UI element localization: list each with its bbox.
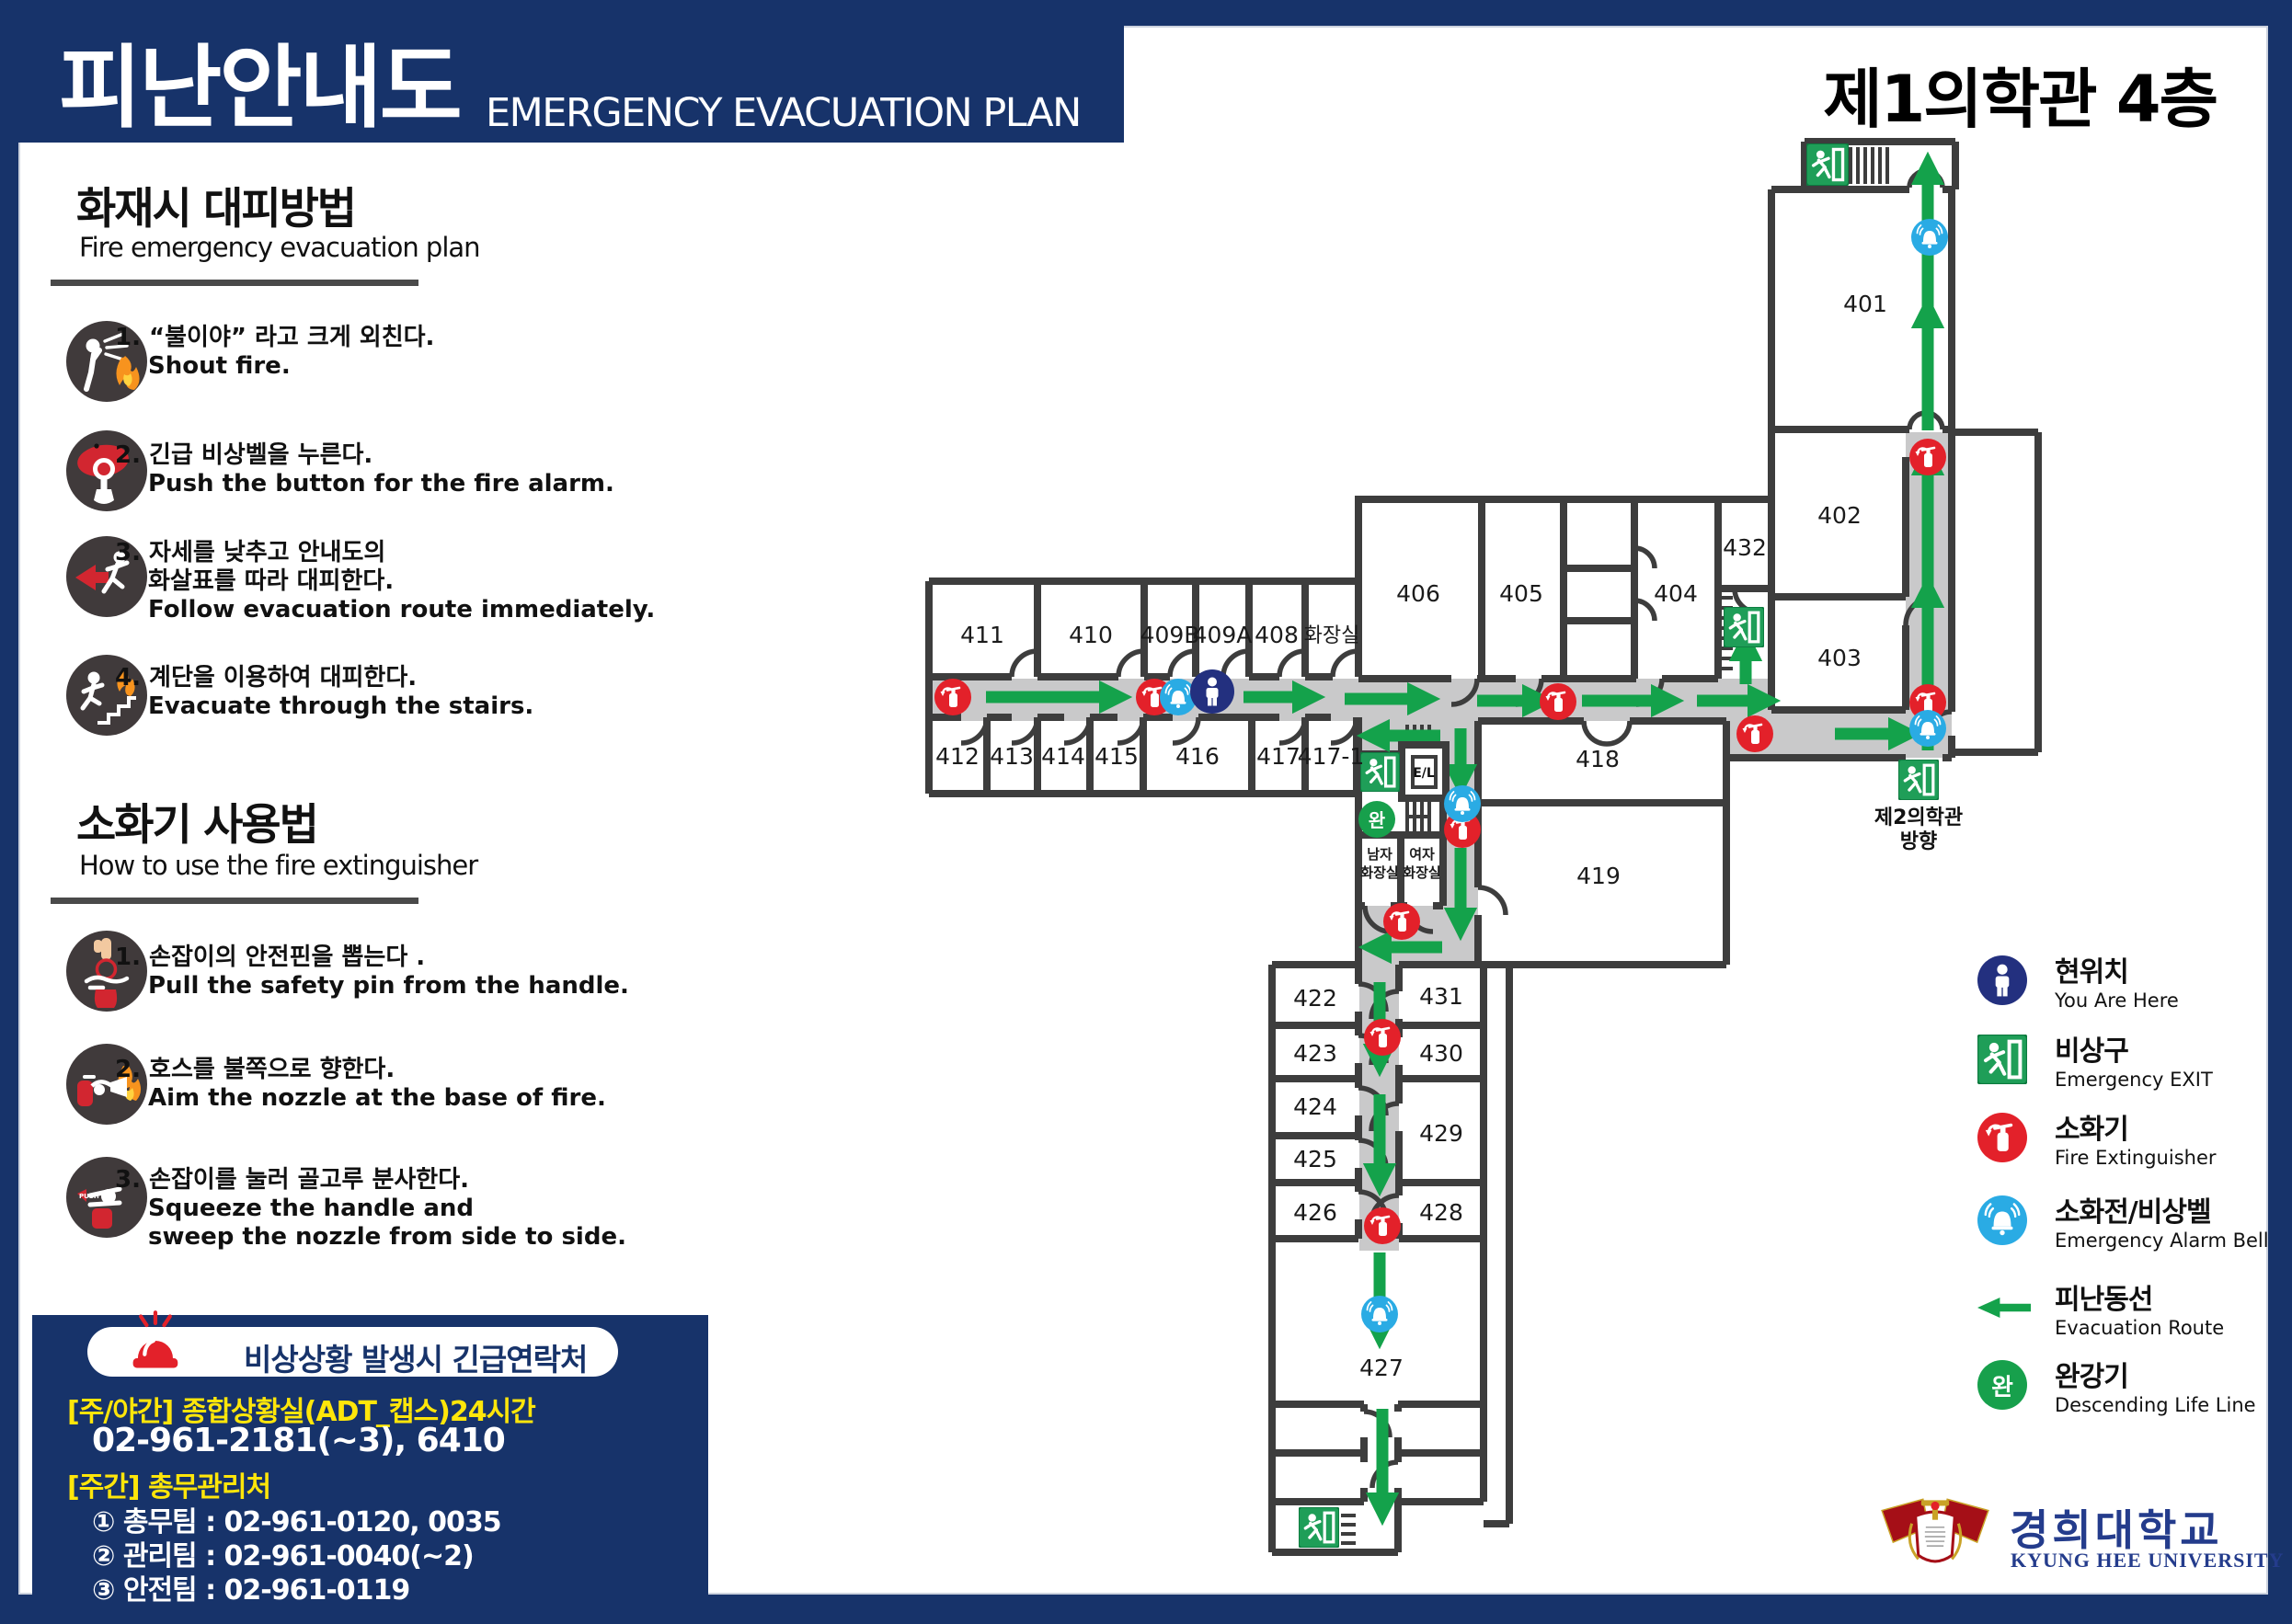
emergency-exit-icon	[1360, 752, 1400, 792]
university-crest	[1874, 1495, 1996, 1580]
room-413: 413	[990, 743, 1034, 770]
room-402: 402	[1817, 502, 1862, 529]
room-427: 427	[1359, 1355, 1404, 1381]
room-415: 415	[1094, 743, 1139, 770]
room-417: 417	[1256, 743, 1301, 770]
room-422: 422	[1293, 985, 1337, 1012]
emergency-exit-icon	[1299, 1507, 1339, 1548]
legend-fire-extinguisher: 소화기Fire Extinguisher	[1977, 1106, 2217, 1169]
room-403: 403	[1817, 645, 1862, 671]
evacuation-route-arrow-icon	[1977, 1290, 2031, 1325]
fire-extinguisher-icon	[1540, 683, 1576, 720]
emergency-exit-icon	[1898, 760, 1939, 800]
legend-emergency-exit: 비상구Emergency EXIT	[1977, 1028, 2213, 1091]
room-426: 426	[1293, 1199, 1337, 1226]
room-431: 431	[1419, 983, 1463, 1010]
room-418: 418	[1576, 746, 1620, 772]
room-432: 432	[1723, 534, 1767, 561]
room-409B: 409B	[1140, 622, 1200, 648]
room-401: 401	[1843, 291, 1887, 317]
legend-evacuation-route: 피난동선Evacuation Route	[1977, 1276, 2224, 1339]
room-428: 428	[1419, 1199, 1463, 1226]
svg-text:완: 완	[1991, 1374, 2013, 1401]
room-419: 419	[1576, 863, 1621, 889]
room-430: 430	[1419, 1040, 1463, 1067]
university-name-english: KYUNG HEE UNIVERSITY	[2011, 1549, 2285, 1573]
elevator: E/L	[1402, 745, 1446, 798]
descending-life-line-icon: 완	[1358, 801, 1395, 838]
room-417-1: 417-1	[1298, 743, 1365, 770]
legend-alarm-bell: 소화전/비상벨Emergency Alarm Bell	[1977, 1189, 2269, 1252]
room-406: 406	[1396, 580, 1440, 607]
mens-restroom-label: 남자	[1367, 846, 1392, 863]
room-409A: 409A	[1193, 622, 1253, 648]
alarm-bell-icon	[1444, 785, 1481, 822]
fire-extinguisher-icon	[1909, 439, 1946, 475]
svg-text:방향: 방향	[1900, 830, 1937, 853]
svg-text:화장실: 화장실	[1360, 864, 1398, 881]
fire-extinguisher-icon	[934, 679, 971, 715]
floor-plan: E/L 완	[0, 0, 2292, 1624]
you-are-here-icon	[1977, 955, 2027, 1005]
stairs-hatching	[1341, 147, 1887, 1543]
fire-extinguisher-icon	[1383, 903, 1420, 940]
descending-life-line-icon: 완	[1977, 1360, 2027, 1410]
legend-descending-life-line: 완 완강기Descending Life Line	[1977, 1354, 2256, 1416]
building2-direction-label: 제2의학관	[1874, 806, 1963, 829]
alarm-bell-icon	[1361, 1296, 1398, 1332]
room-425: 425	[1293, 1146, 1337, 1172]
evacuation-poster: 피난안내도 EMERGENCY EVACUATION PLAN 제1의학관 4층…	[0, 0, 2292, 1624]
elevator-label: E/L	[1413, 766, 1435, 781]
room-429: 429	[1419, 1120, 1463, 1147]
room-414: 414	[1041, 743, 1085, 770]
walls	[929, 142, 2038, 1552]
room-toilet: 화장실	[1304, 624, 1360, 647]
fire-extinguisher-icon	[1364, 1207, 1401, 1244]
room-408: 408	[1255, 622, 1299, 648]
room-410: 410	[1069, 622, 1113, 648]
fire-extinguisher-icon	[1364, 1019, 1401, 1056]
fire-extinguisher-icon	[1736, 715, 1773, 752]
alarm-bell-icon	[1977, 1195, 2027, 1245]
fire-extinguisher-icon	[1977, 1113, 2027, 1162]
room-411: 411	[960, 622, 1004, 648]
svg-text:화장실: 화장실	[1403, 864, 1440, 881]
you-are-here-icon	[1190, 669, 1234, 714]
emergency-exit-icon	[1806, 143, 1849, 186]
room-404: 404	[1654, 580, 1698, 607]
emergency-exit-icon	[1977, 1035, 2027, 1084]
emergency-exit-icon	[1724, 607, 1764, 647]
room-416: 416	[1175, 743, 1220, 770]
room-412: 412	[935, 743, 980, 770]
legend-you-are-here: 현위치You Are Here	[1977, 949, 2179, 1012]
alarm-bell-icon	[1909, 710, 1946, 747]
room-424: 424	[1293, 1093, 1337, 1120]
room-423: 423	[1293, 1040, 1337, 1067]
room-405: 405	[1499, 580, 1543, 607]
alarm-bell-icon	[1911, 219, 1948, 256]
alarm-bell-icons	[1160, 219, 1948, 1332]
emergency-exit-icons	[1299, 143, 1939, 1548]
svg-text:완: 완	[1369, 809, 1386, 831]
womens-restroom-label: 여자	[1409, 846, 1435, 863]
